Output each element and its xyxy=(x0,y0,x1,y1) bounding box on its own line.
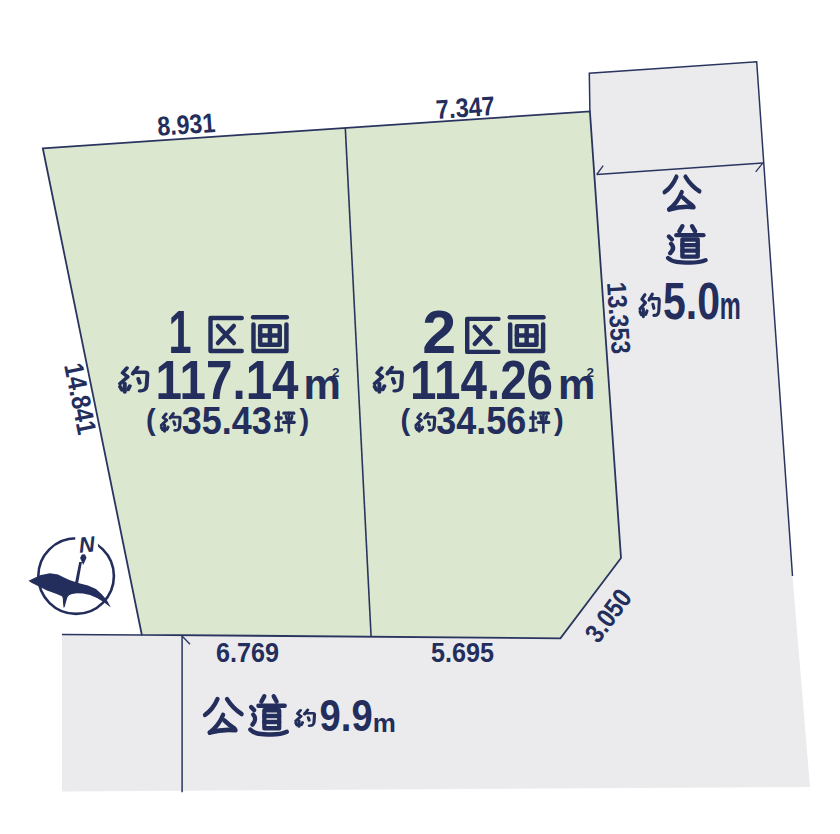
svg-text:(: ( xyxy=(146,404,156,436)
svg-text:): ) xyxy=(300,404,310,436)
svg-text:2: 2 xyxy=(587,365,595,380)
svg-text:m: m xyxy=(720,284,741,327)
svg-text:5.0: 5.0 xyxy=(663,272,720,330)
svg-text:): ) xyxy=(554,404,564,436)
svg-text:13.353: 13.353 xyxy=(601,281,636,355)
svg-text:9.9: 9.9 xyxy=(320,691,373,740)
svg-text:2: 2 xyxy=(332,365,340,380)
svg-text:m: m xyxy=(373,708,396,738)
svg-text:35.43: 35.43 xyxy=(182,399,272,442)
svg-text:34.56: 34.56 xyxy=(436,399,526,442)
svg-text:5.695: 5.695 xyxy=(431,638,494,668)
svg-text:7.347: 7.347 xyxy=(435,91,496,125)
svg-text:(: ( xyxy=(401,404,411,436)
svg-text:6.769: 6.769 xyxy=(216,638,279,668)
svg-text:8.931: 8.931 xyxy=(156,108,216,142)
